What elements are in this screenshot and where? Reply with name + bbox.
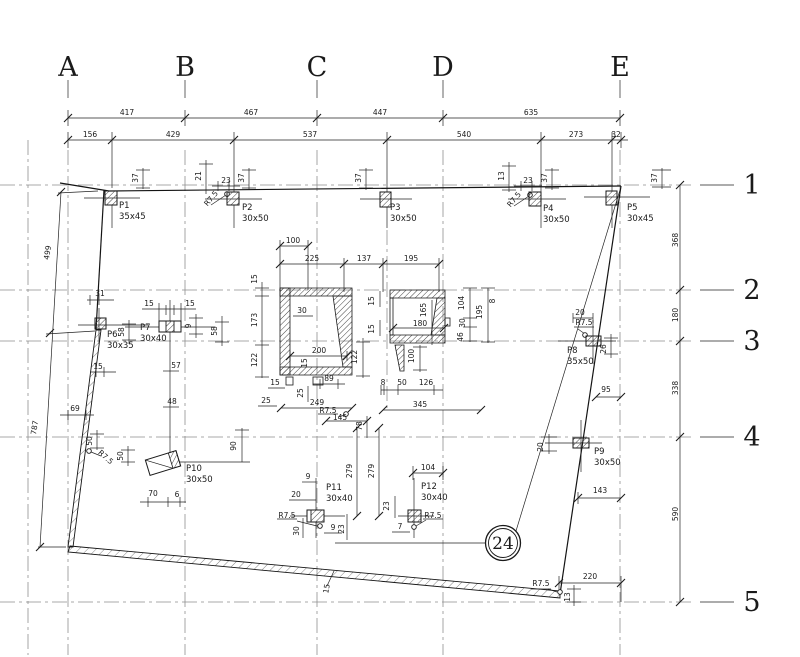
dim-label: 200 xyxy=(312,346,327,355)
dim-label: R7.5 xyxy=(575,318,592,327)
dim-label: 635 xyxy=(524,108,539,117)
dim-label: 46 xyxy=(456,332,465,342)
column-id-label: P4 xyxy=(543,204,554,214)
column-P4 xyxy=(529,192,541,206)
column-size-label: 30x50 xyxy=(543,215,570,225)
radius-marker-circle xyxy=(412,525,417,530)
dim-label: 23 xyxy=(382,501,391,511)
column-P6 xyxy=(95,318,106,329)
dim-label: 8 xyxy=(488,298,497,303)
grid-column-label-E: E xyxy=(610,52,630,83)
shear-wall xyxy=(280,288,352,296)
dim-label: 70 xyxy=(148,489,158,498)
drawing-sheet: 24 ABCDE12345P135x45P230x50P330x50P430x5… xyxy=(0,0,800,657)
dim-label: 20 xyxy=(536,442,545,452)
column-id-label: P6 xyxy=(107,330,118,340)
dim-label: 220 xyxy=(583,572,598,581)
dim-label: 23 xyxy=(337,524,346,534)
radius-marker-circle xyxy=(87,449,92,454)
column-size-label: 30x50 xyxy=(186,475,213,485)
dim-label: 50 xyxy=(85,436,94,446)
column-P7 xyxy=(159,321,181,332)
dim-label: 58 xyxy=(210,326,219,336)
dim-label: 137 xyxy=(357,254,372,263)
column-P12 xyxy=(408,510,421,522)
dim-label: 8 xyxy=(381,378,386,387)
column-id-label: P9 xyxy=(594,447,605,457)
dim-label: 23 xyxy=(221,176,231,185)
dim-label: 20 xyxy=(291,490,301,499)
column-P11 xyxy=(307,510,324,522)
column-outline xyxy=(95,318,106,329)
dim-label: 104 xyxy=(457,296,466,311)
dim-label: R7.5 xyxy=(424,511,441,520)
dim-label: 15 xyxy=(321,583,332,594)
dim-label: 122 xyxy=(350,350,359,365)
dim-label: 145 xyxy=(333,413,348,422)
dim-label: 23 xyxy=(523,176,533,185)
dim-label: R7.5 xyxy=(278,511,295,520)
column-size-label: 30x40 xyxy=(326,494,353,504)
dim-label: 57 xyxy=(171,361,181,370)
grid-column-label-D: D xyxy=(432,52,454,83)
column-P1 xyxy=(105,191,117,205)
column-hatch xyxy=(166,321,174,332)
dim-label: 69 xyxy=(70,404,80,413)
dim-label: 15 xyxy=(144,299,154,308)
column-outline xyxy=(105,191,117,205)
dim-label: 195 xyxy=(475,305,484,320)
dim-label: 338 xyxy=(671,381,680,396)
shear-wall xyxy=(390,290,445,298)
dim-label: 165 xyxy=(419,303,428,318)
grid-column-label-B: B xyxy=(175,52,195,83)
grid-row-label-1: 1 xyxy=(743,170,760,201)
dim-label: 50 xyxy=(116,451,125,461)
dim-label: 30 xyxy=(458,318,467,328)
floor-plan-svg: 24 ABCDE12345P135x45P230x50P330x50P430x5… xyxy=(0,0,800,657)
dim-label: 15 xyxy=(300,358,309,368)
dim-label: 100 xyxy=(407,349,416,364)
grid-row-label-3: 3 xyxy=(743,326,760,357)
dim-label: 368 xyxy=(671,233,680,248)
dim-label: 32 xyxy=(611,130,621,139)
dim-label: 13 xyxy=(497,171,506,181)
dim-label: 7 xyxy=(398,522,403,531)
dim-label: 48 xyxy=(167,397,177,406)
grid-column-label-A: A xyxy=(57,52,78,83)
dim-label: 90 xyxy=(229,441,238,451)
dim-label: 537 xyxy=(303,130,318,139)
column-size-label: 30x50 xyxy=(242,214,269,224)
grid-row-label-2: 2 xyxy=(743,275,760,306)
dim-label: 31 xyxy=(95,289,105,298)
dim-label: 25 xyxy=(261,396,271,405)
radius-marker-circle xyxy=(558,590,563,595)
dim-label: 195 xyxy=(404,254,419,263)
dim-label: 37 xyxy=(540,173,549,183)
dim-label: 26 xyxy=(599,344,608,354)
column-outline xyxy=(408,510,421,522)
column-P2 xyxy=(227,192,239,205)
dim-label: 15 xyxy=(270,378,280,387)
dim-label: 143 xyxy=(593,486,608,495)
dim-label: 279 xyxy=(367,464,376,479)
column-size-label: 30x50 xyxy=(594,458,621,468)
column-size-label: 35x50 xyxy=(567,357,594,367)
dim-label: 126 xyxy=(419,378,434,387)
shear-wall xyxy=(390,335,445,343)
dim-label: 104 xyxy=(421,463,436,472)
shear-wall xyxy=(280,288,290,375)
dim-label: 15 xyxy=(367,296,376,306)
dim-label: 89 xyxy=(324,374,334,383)
dim-label: 15 xyxy=(93,362,103,371)
dim-label: 447 xyxy=(373,108,388,117)
dim-label: 15 xyxy=(185,299,195,308)
column-id-label: P7 xyxy=(140,323,151,333)
dim-label: 50 xyxy=(397,378,407,387)
column-outline xyxy=(227,192,239,205)
column-size-label: 35x45 xyxy=(119,212,146,222)
dim-label: 100 xyxy=(286,236,301,245)
dim-label: 30 xyxy=(297,306,307,315)
column-id-label: P3 xyxy=(390,203,401,213)
column-size-label: 30x35 xyxy=(107,341,134,351)
dim-label: 9 xyxy=(184,323,193,328)
column-id-label: P8 xyxy=(567,346,578,356)
dim-label: 25 xyxy=(296,388,305,398)
column-size-label: 30x45 xyxy=(627,214,654,224)
dim-label: 9 xyxy=(331,523,336,532)
dim-label: 78 xyxy=(355,421,364,431)
dim-label: 279 xyxy=(345,464,354,479)
dim-label: 180 xyxy=(413,319,428,328)
dim-label: 95 xyxy=(601,385,611,394)
grid-row-label-4: 4 xyxy=(743,422,760,453)
dim-label: 345 xyxy=(413,400,428,409)
detail-number: 24 xyxy=(492,534,514,554)
dim-label: 58 xyxy=(117,327,126,337)
dim-label: 540 xyxy=(457,130,472,139)
dim-label: 15 xyxy=(250,274,259,284)
detail-marker-24: 24 xyxy=(486,526,521,561)
shear-wall xyxy=(280,367,352,375)
dim-label: 273 xyxy=(569,130,584,139)
column-id-label: P11 xyxy=(326,483,342,493)
column-id-label: P1 xyxy=(119,201,130,211)
column-size-label: 30x40 xyxy=(140,334,167,344)
dim-label: 13 xyxy=(563,592,572,602)
column-size-label: 30x50 xyxy=(390,214,417,224)
column-id-label: P2 xyxy=(242,203,253,213)
column-hatch xyxy=(311,510,324,522)
dim-label: 37 xyxy=(131,173,140,183)
dim-label: 180 xyxy=(671,308,680,323)
dim-label: 30 xyxy=(292,526,301,536)
column-id-label: P5 xyxy=(627,203,638,213)
grid-column-label-C: C xyxy=(307,52,328,83)
dim-label: 9 xyxy=(306,472,311,481)
dim-label: 417 xyxy=(120,108,135,117)
dim-label: 429 xyxy=(166,130,181,139)
dim-label: 37 xyxy=(650,173,659,183)
grid-row-label-5: 5 xyxy=(743,587,760,618)
dim-label: 122 xyxy=(250,353,259,368)
column-size-label: 30x40 xyxy=(421,493,448,503)
dim-label: 37 xyxy=(237,173,246,183)
dim-label: R7.5 xyxy=(532,579,549,588)
column-id-label: P10 xyxy=(186,464,202,474)
radius-marker-circle xyxy=(318,524,323,529)
column-id-label: P12 xyxy=(421,482,437,492)
column-outline xyxy=(529,192,541,206)
dim-label: 590 xyxy=(671,507,680,522)
column-P9 xyxy=(573,438,589,448)
dim-label: 37 xyxy=(354,173,363,183)
dim-label: 156 xyxy=(83,130,98,139)
dim-label: 15 xyxy=(367,324,376,334)
column-outline xyxy=(573,438,589,448)
dim-label: 20 xyxy=(575,308,585,317)
dim-label: 173 xyxy=(250,313,259,328)
column-outline xyxy=(606,191,617,205)
dim-label: 467 xyxy=(244,108,259,117)
dim-label: 225 xyxy=(305,254,320,263)
dim-label: 21 xyxy=(194,171,203,181)
column-P5 xyxy=(606,191,617,205)
dim-label: 6 xyxy=(175,490,180,499)
